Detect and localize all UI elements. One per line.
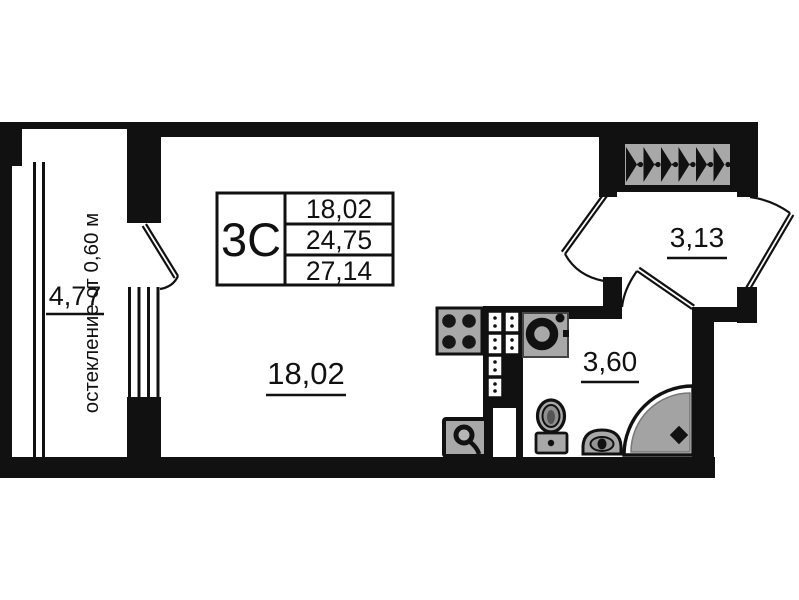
- info-area-1: 18,02: [306, 194, 372, 224]
- info-table: 3С 18,02 24,75 27,14: [217, 193, 393, 286]
- toilet-icon: [536, 400, 567, 453]
- living-area-label: 18,02: [267, 356, 345, 391]
- balcony-glazing-window: [33, 162, 45, 457]
- glazing-note-label: остекление от 0,60 м: [80, 213, 103, 413]
- shower-icon: [624, 386, 693, 455]
- washing-machine-icon: [444, 419, 486, 456]
- kitchen-sink-icon: [523, 313, 569, 357]
- vent-shaft-icon: [617, 137, 738, 192]
- hall-area-label: 3,13: [670, 222, 725, 253]
- entrance-door: [746, 197, 793, 290]
- unit-type-label: 3С: [221, 213, 281, 266]
- hall-room-door: [562, 194, 607, 281]
- info-area-3: 27,14: [306, 256, 372, 286]
- balcony-door: [143, 224, 178, 289]
- bathroom-area-label: 3,60: [583, 346, 638, 377]
- floor-plan-svg: 3С 18,02 24,75 27,14 18,02 4,77 3,13 3,6…: [0, 0, 799, 600]
- wall-niche: [493, 408, 516, 457]
- info-area-2: 24,75: [306, 225, 372, 255]
- washbasin-icon: [583, 430, 621, 454]
- room-balcony-window: [128, 287, 160, 397]
- floor-plan: 3С 18,02 24,75 27,14 18,02 4,77 3,13 3,6…: [0, 0, 799, 600]
- stove-icon: [437, 308, 482, 354]
- bathroom-door: [622, 268, 694, 309]
